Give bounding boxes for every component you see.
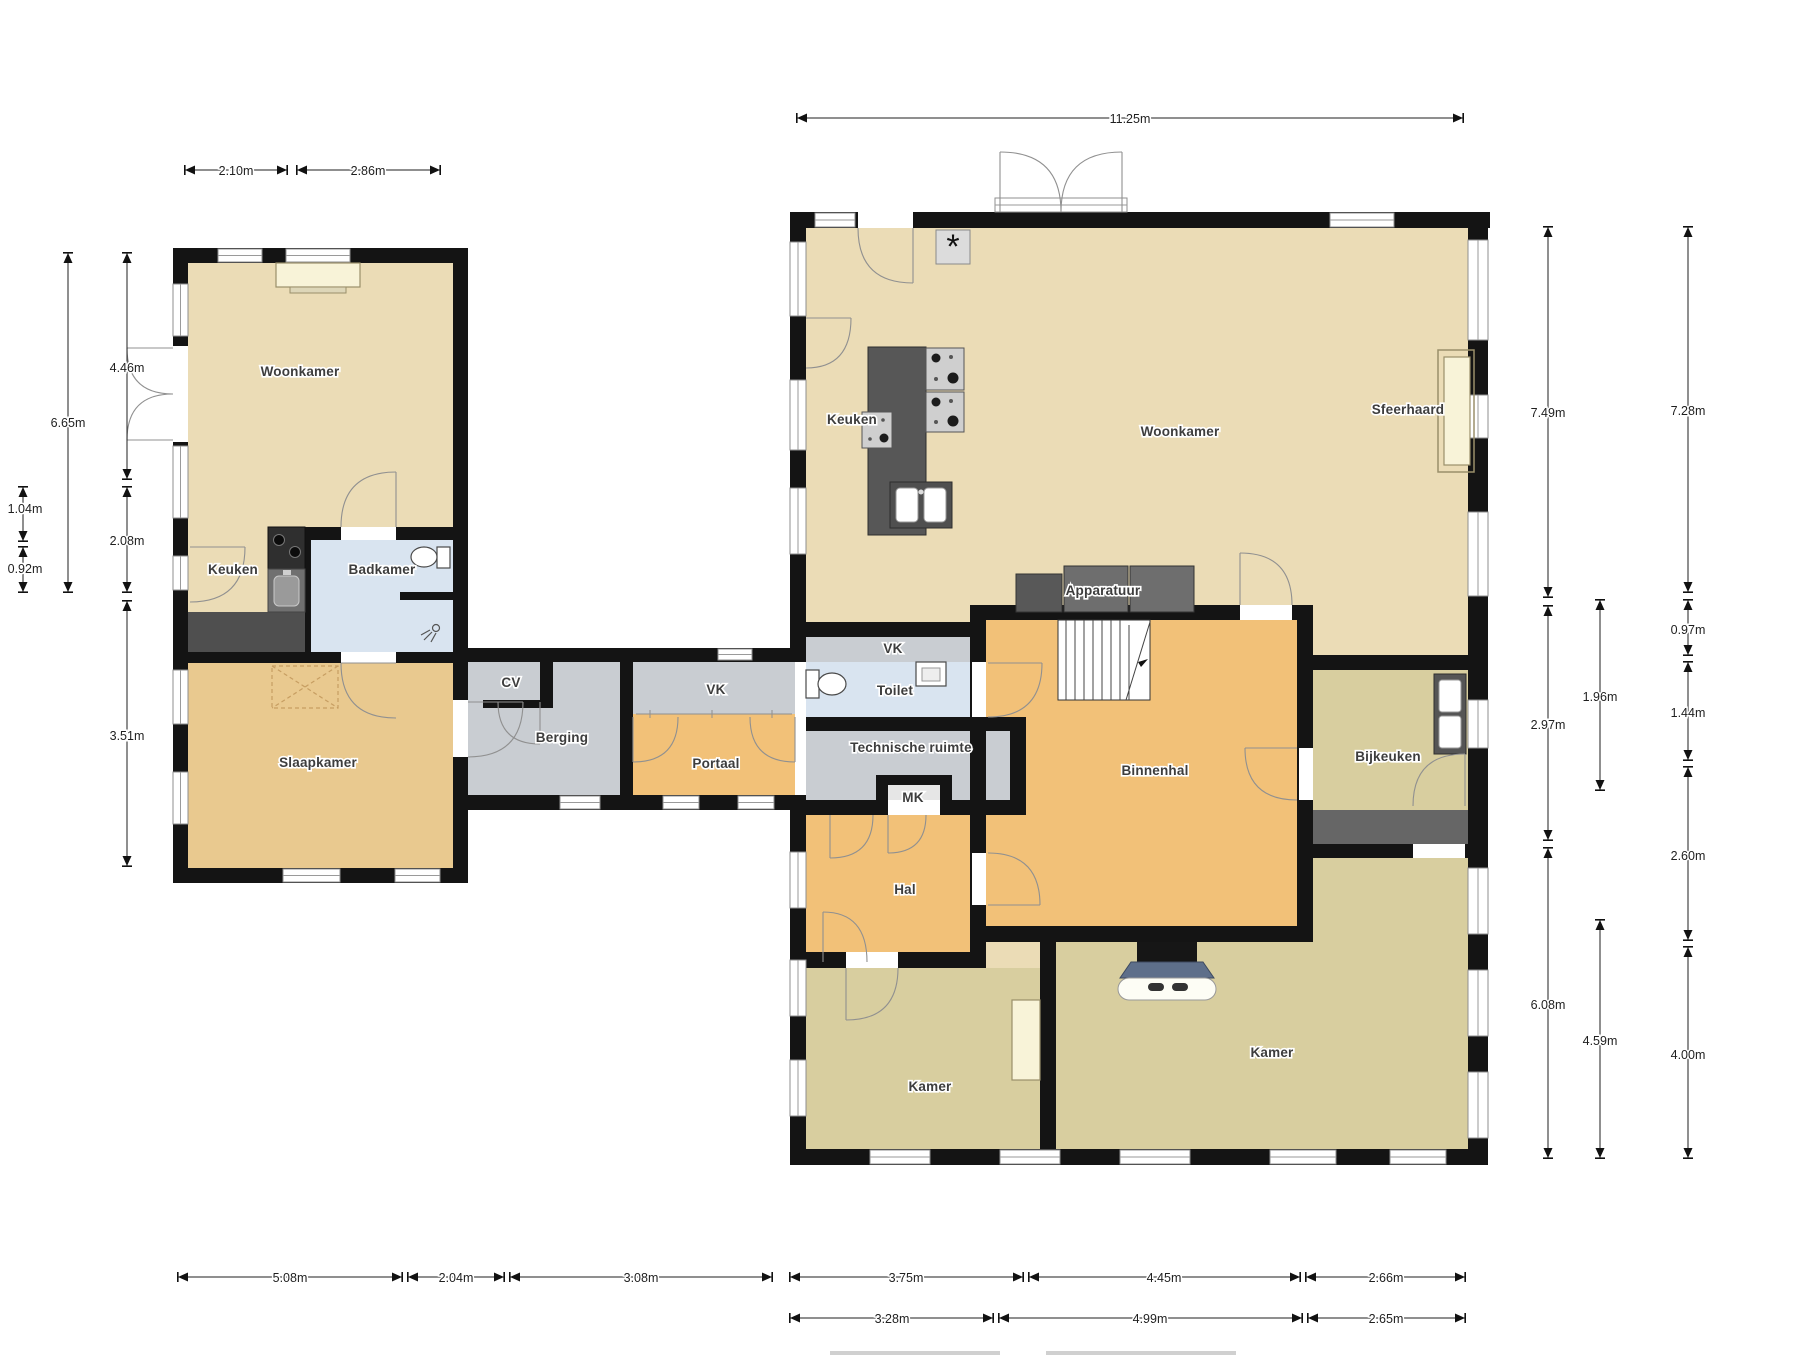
svg-text:7.49m: 7.49m [1531, 406, 1566, 420]
floorplan: Woonkamer Keuken Badkamer Slaapkamer [0, 0, 1814, 1356]
dimension: 3.08m [510, 1271, 772, 1285]
svg-text:3.51m: 3.51m [110, 729, 145, 743]
svg-text:11.25m: 11.25m [1110, 112, 1151, 126]
svg-text:2.10m: 2.10m [219, 164, 254, 178]
label-hal: Hal [894, 882, 916, 897]
dimension: 7.28m [1671, 227, 1706, 592]
dimension: 2.65m [1308, 1312, 1465, 1326]
dimension: 7.49m [1531, 227, 1566, 597]
dimension-clipped [830, 1351, 1236, 1355]
label-berging: Berging [536, 730, 588, 745]
svg-text:5.08m: 5.08m [273, 1271, 308, 1285]
label-left-keuken: Keuken [208, 562, 258, 577]
left-building: Woonkamer Keuken Badkamer Slaapkamer [127, 248, 468, 883]
label-right-woonkamer: Woonkamer [1141, 424, 1220, 439]
asterisk-box: * [936, 228, 970, 266]
asterisk-symbol: * [946, 228, 959, 266]
bijkeuken-sink-icon [1434, 674, 1466, 754]
label-mk: MK [902, 790, 923, 805]
dimension: 0.92m [8, 547, 43, 592]
label-bijkeuken: Bijkeuken [1355, 749, 1421, 764]
svg-text:3.28m: 3.28m [875, 1312, 910, 1326]
dimension: 4.00m [1671, 947, 1706, 1158]
island-sink-icon [890, 482, 952, 528]
dimension: 4.45m [1029, 1271, 1300, 1285]
svg-text:2.65m: 2.65m [1369, 1312, 1404, 1326]
svg-text:3.75m: 3.75m [889, 1271, 924, 1285]
room-portaal [633, 714, 795, 795]
dimension: 2.66m [1306, 1271, 1465, 1285]
svg-text:0.92m: 0.92m [8, 562, 43, 576]
svg-text:4.99m: 4.99m [1133, 1312, 1168, 1326]
label-kamer-left: Kamer [908, 1079, 952, 1094]
label-vk-link: VK [706, 682, 725, 697]
label-right-keuken: Keuken [827, 412, 877, 427]
label-left-badkamer: Badkamer [349, 562, 416, 577]
dimension: 3.28m [790, 1312, 993, 1326]
dimension: 5.08m [178, 1271, 402, 1285]
svg-text:2.04m: 2.04m [439, 1271, 474, 1285]
label-technische-ruimte: Technische ruimte [850, 740, 972, 755]
svg-text:7.28m: 7.28m [1671, 404, 1706, 418]
label-apparatuur: Apparatuur [1066, 583, 1141, 598]
svg-text:2.66m: 2.66m [1369, 1271, 1404, 1285]
svg-text:2.86m: 2.86m [351, 164, 386, 178]
svg-text:0.97m: 0.97m [1671, 623, 1706, 637]
dimension: 2.08m [110, 487, 145, 592]
dimension: 1.44m [1671, 662, 1706, 760]
dimension: 2.60m [1671, 767, 1706, 940]
label-portaal: Portaal [692, 756, 739, 771]
label-left-woonkamer: Woonkamer [261, 364, 340, 379]
svg-text:3.08m: 3.08m [624, 1271, 659, 1285]
svg-text:1.44m: 1.44m [1671, 706, 1706, 720]
svg-text:6.65m: 6.65m [51, 416, 86, 430]
dimension: 2.04m [408, 1271, 504, 1285]
svg-text:4.46m: 4.46m [110, 361, 145, 375]
window-sill-lip [290, 287, 346, 293]
svg-text:2.08m: 2.08m [110, 534, 145, 548]
dimension: 11.25m [797, 112, 1463, 126]
svg-text:4.00m: 4.00m [1671, 1048, 1706, 1062]
svg-text:1.04m: 1.04m [8, 502, 43, 516]
dimension: 1.04m [8, 487, 43, 541]
room-kamer-left [806, 968, 1040, 1150]
hob-icon [926, 348, 964, 432]
bijkeuken-counter [1313, 810, 1468, 844]
svg-text:1.96m: 1.96m [1583, 690, 1618, 704]
dimension: 2.10m [185, 164, 287, 178]
french-door [995, 152, 1127, 212]
window-sill [276, 263, 360, 287]
dimension: 3.51m [110, 601, 145, 866]
svg-text:6.08m: 6.08m [1531, 998, 1566, 1012]
label-binnenhal: Binnenhal [1121, 763, 1188, 778]
svg-text:2.97m: 2.97m [1531, 718, 1566, 732]
dimension: 4.99m [999, 1312, 1302, 1326]
stairs [1058, 620, 1150, 700]
dimension: 2.86m [297, 164, 440, 178]
svg-text:4.59m: 4.59m [1583, 1034, 1618, 1048]
label-vk-right: VK [883, 641, 902, 656]
dimension: 1.96m [1583, 600, 1618, 790]
label-toilet: Toilet [877, 683, 914, 698]
label-cv: CV [501, 675, 520, 690]
dimension: 4.46m [110, 253, 145, 479]
dimension: 3.75m [790, 1271, 1023, 1285]
toilet-icon [411, 547, 450, 568]
corridor: CV Berging VK Portaal [453, 648, 807, 810]
dimension: 6.65m [51, 253, 86, 592]
dimension: 6.08m [1531, 848, 1566, 1158]
label-sfeerhaard: Sfeerhaard [1372, 402, 1445, 417]
dimension: 4.59m [1583, 920, 1618, 1158]
svg-text:4.45m: 4.45m [1147, 1271, 1182, 1285]
label-kamer-right: Kamer [1250, 1045, 1294, 1060]
dimension: 2.97m [1531, 606, 1566, 840]
right-building: * [790, 152, 1490, 1165]
floorplan-svg: Woonkamer Keuken Badkamer Slaapkamer [0, 0, 1814, 1356]
svg-text:2.60m: 2.60m [1671, 849, 1706, 863]
cabinet-icon [1012, 1000, 1040, 1080]
dimension: 0.97m [1671, 600, 1706, 655]
label-left-slaapkamer: Slaapkamer [279, 755, 357, 770]
